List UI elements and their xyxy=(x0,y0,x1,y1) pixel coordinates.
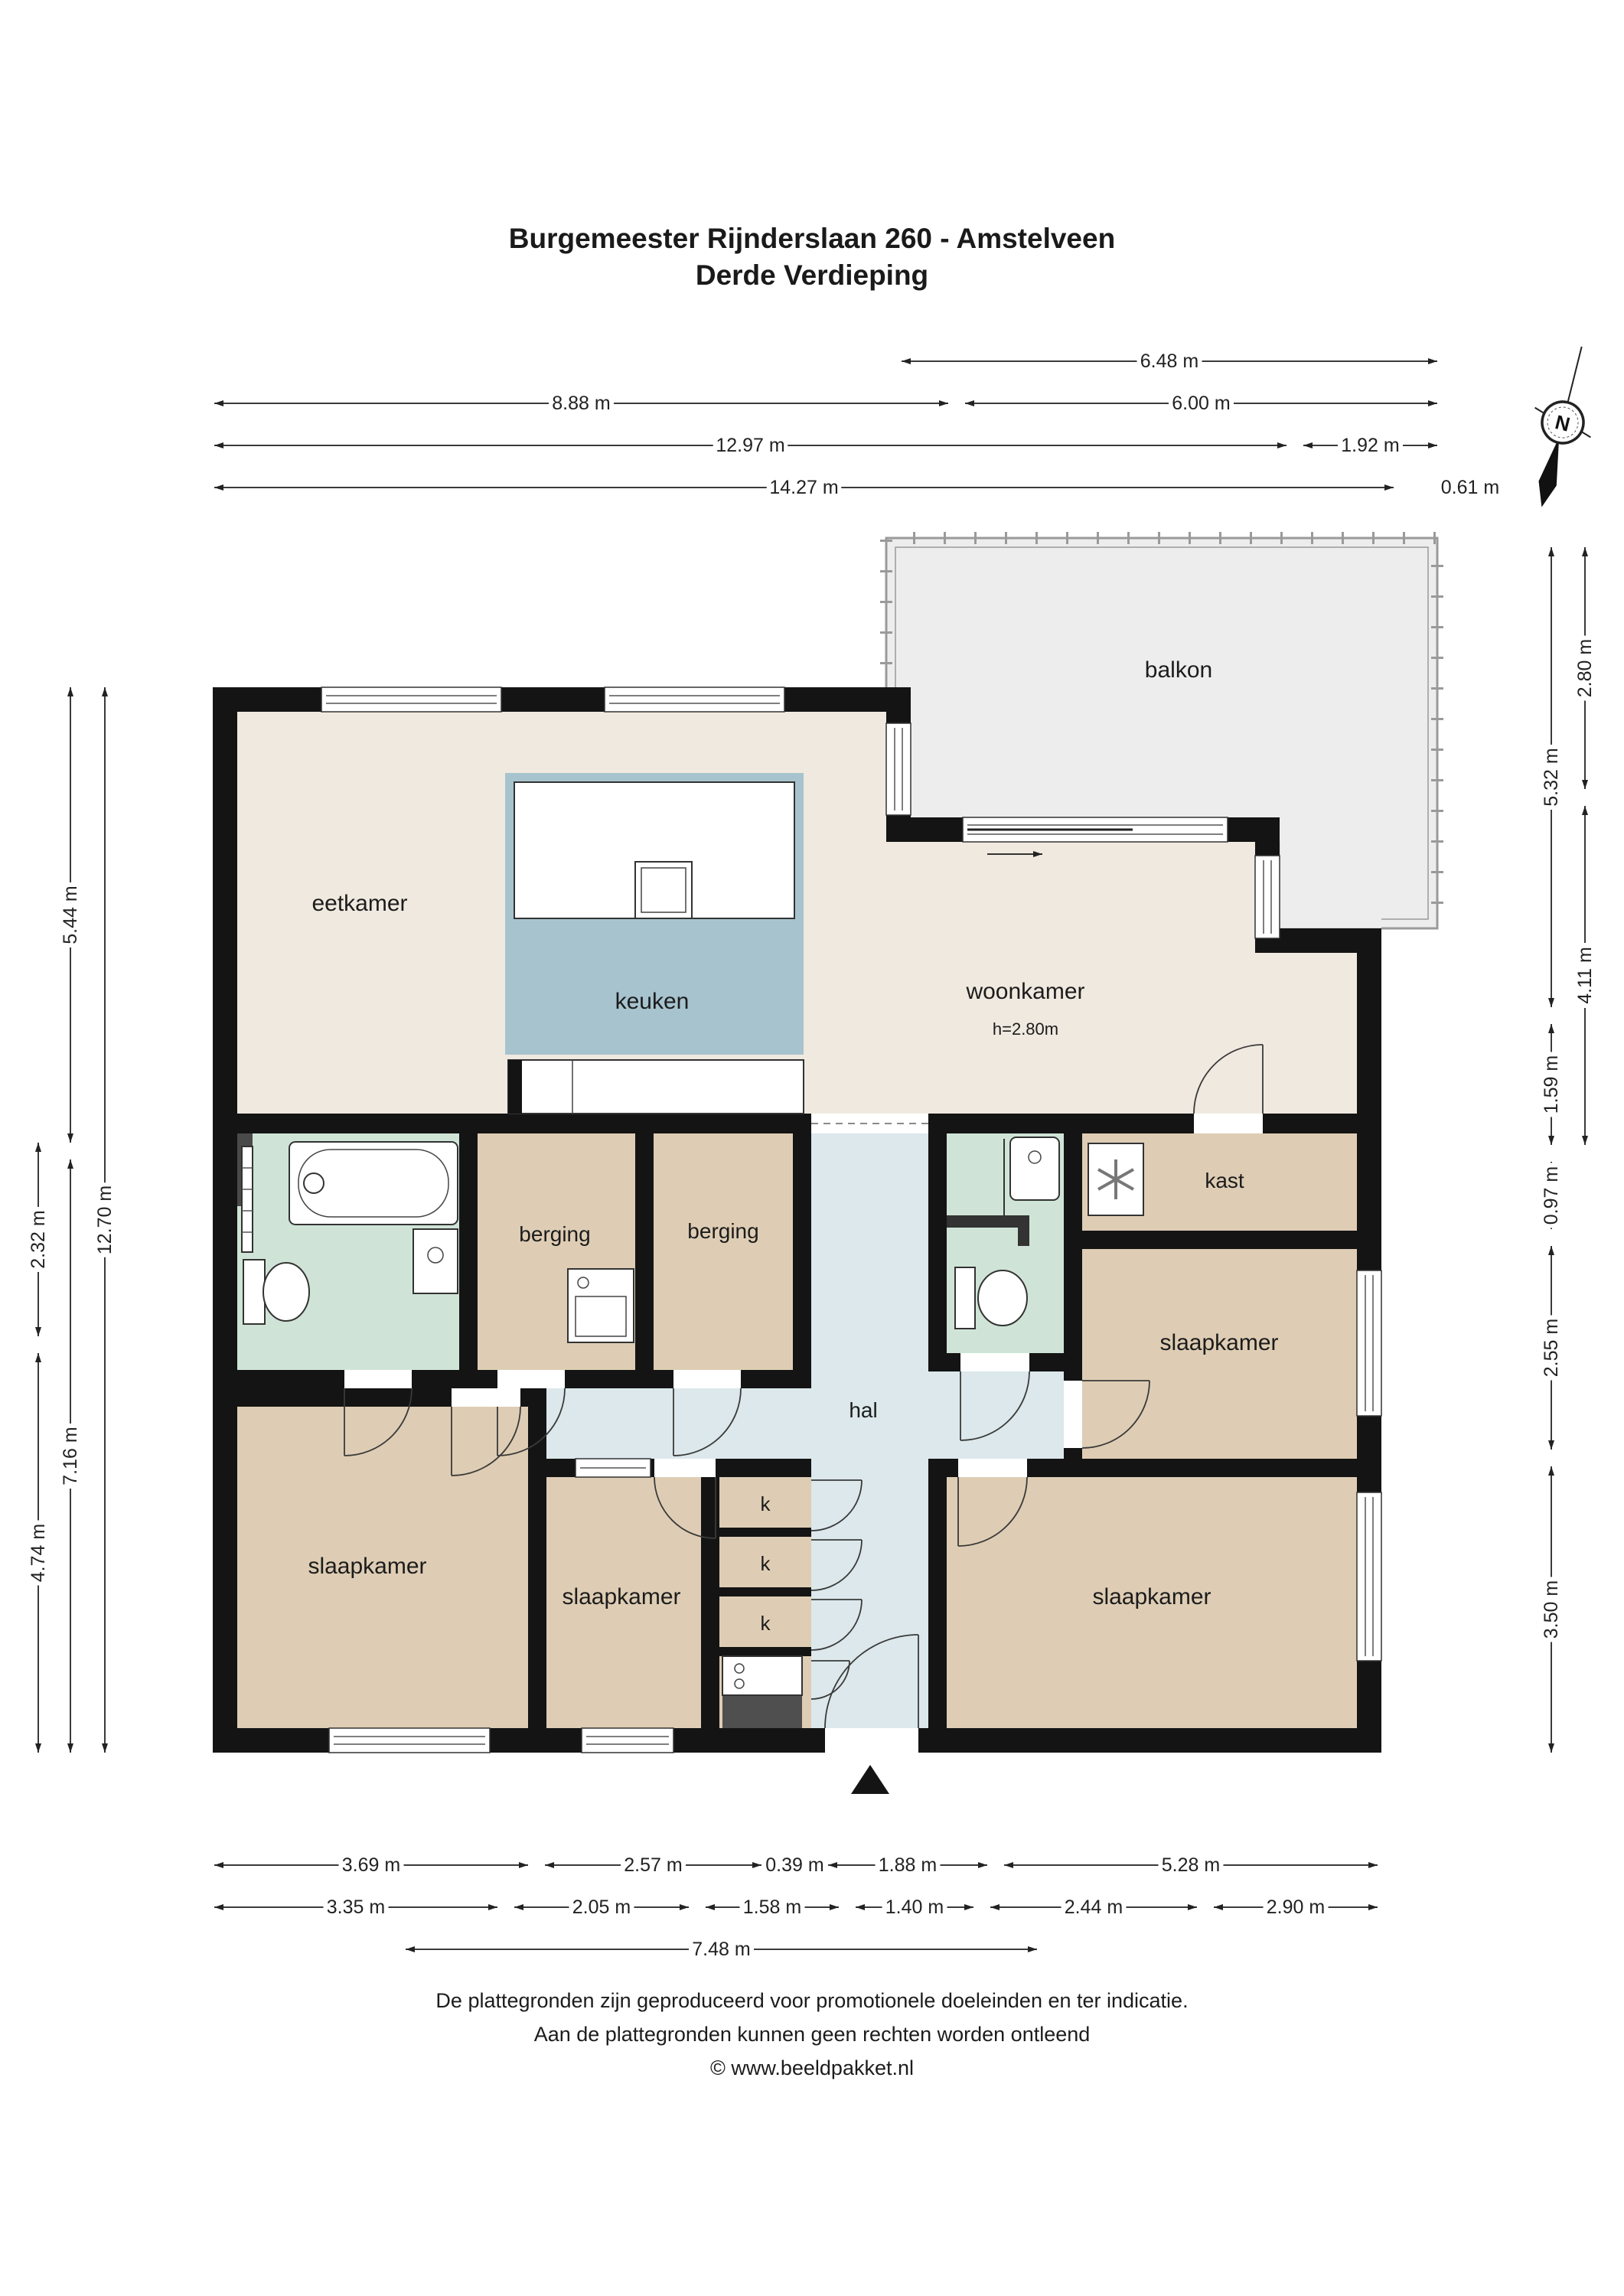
room-label-woonkamer-height: h=2.80m xyxy=(993,1019,1058,1039)
svg-text:12.70 m: 12.70 m xyxy=(94,1186,116,1254)
dimension: 4.11 m xyxy=(1574,806,1596,1145)
svg-text:6.48 m: 6.48 m xyxy=(1140,351,1198,372)
dimension: 1.40 m xyxy=(856,1896,973,1918)
dimension: 12.97 m xyxy=(214,435,1286,456)
dimension: 7.16 m xyxy=(60,1159,81,1753)
svg-text:6.00 m: 6.00 m xyxy=(1172,393,1230,414)
dimension: 3.69 m xyxy=(214,1854,528,1876)
svg-text:5.32 m: 5.32 m xyxy=(1541,748,1562,806)
dimension: 1.92 m xyxy=(1303,435,1437,456)
room-label-slaapkamer-right: slaapkamer xyxy=(1159,1330,1278,1355)
svg-text:7.48 m: 7.48 m xyxy=(692,1939,750,1960)
svg-text:4.74 m: 4.74 m xyxy=(28,1524,49,1582)
room-label-closet-2: k xyxy=(761,1552,771,1575)
hall-trunk-floor xyxy=(811,1133,928,1728)
svg-text:12.97 m: 12.97 m xyxy=(716,435,784,456)
room-label-slaapkamer-middle: slaapkamer xyxy=(562,1584,680,1609)
dimension: 2.57 m xyxy=(545,1854,761,1876)
dimension: 2.55 m xyxy=(1541,1246,1562,1450)
floorplan-page: Burgemeester Rijnderslaan 260 - Amstelve… xyxy=(0,0,1624,2296)
svg-text:2.57 m: 2.57 m xyxy=(624,1854,682,1876)
hall-right-arm-floor xyxy=(928,1371,1082,1459)
dimension: 5.44 m xyxy=(60,687,81,1143)
svg-text:0.97 m: 0.97 m xyxy=(1541,1166,1562,1225)
svg-text:0.39 m: 0.39 m xyxy=(765,1854,823,1876)
room-label-slaapkamer-left: slaapkamer xyxy=(308,1554,426,1579)
svg-text:2.05 m: 2.05 m xyxy=(572,1896,631,1918)
dimension: 2.80 m xyxy=(1574,547,1596,789)
svg-text:2.44 m: 2.44 m xyxy=(1065,1896,1123,1918)
window-icon xyxy=(582,1728,673,1753)
washer-icon xyxy=(568,1269,634,1342)
dimension: 4.74 m xyxy=(28,1353,49,1753)
svg-text:2.55 m: 2.55 m xyxy=(1541,1319,1562,1377)
dimension: 0.39 m xyxy=(762,1854,827,1876)
dimension: 2.90 m xyxy=(1214,1896,1378,1918)
room-label-keuken: keuken xyxy=(615,989,690,1014)
svg-text:3.35 m: 3.35 m xyxy=(327,1896,385,1918)
dimension: 7.48 m xyxy=(406,1939,1037,1960)
room-label-berging-1: berging xyxy=(519,1222,590,1246)
room-label-hal: hal xyxy=(849,1398,877,1422)
window-icon xyxy=(1357,1492,1381,1661)
window-icon xyxy=(886,723,911,815)
room-label-berging-2: berging xyxy=(687,1219,758,1243)
kitchen-cabinets-icon xyxy=(508,1060,804,1114)
room-label-balkon: balkon xyxy=(1145,657,1212,683)
toilet-icon xyxy=(955,1267,1027,1329)
washbasin-icon xyxy=(1010,1137,1059,1200)
svg-text:5.28 m: 5.28 m xyxy=(1162,1854,1220,1876)
svg-text:2.90 m: 2.90 m xyxy=(1267,1896,1325,1918)
svg-text:1.40 m: 1.40 m xyxy=(885,1896,944,1918)
window-icon xyxy=(329,1728,490,1753)
svg-text:0.61 m: 0.61 m xyxy=(1441,477,1499,498)
svg-text:4.11 m: 4.11 m xyxy=(1574,947,1596,1004)
floorplan-drawing: N 6.48 m8.88 m6.00 m12.97 m1.92 m14.27 m… xyxy=(0,0,1624,2296)
bathtub-icon xyxy=(289,1142,458,1225)
room-label-slaapkamer-bottom-right: slaapkamer xyxy=(1092,1584,1211,1609)
room-label-woonkamer: woonkamer xyxy=(965,979,1084,1004)
svg-text:1.88 m: 1.88 m xyxy=(879,1854,937,1876)
technical-closet xyxy=(722,1695,802,1728)
toilet-icon xyxy=(243,1260,309,1324)
dimension: 8.88 m xyxy=(214,393,948,414)
disclaimer-line-1: De plattegronden zijn geproduceerd voor … xyxy=(0,1984,1624,2017)
storage2-floor xyxy=(654,1133,793,1370)
dimension: 2.44 m xyxy=(990,1896,1197,1918)
disclaimer: De plattegronden zijn geproduceerd voor … xyxy=(0,1984,1624,2085)
svg-text:7.16 m: 7.16 m xyxy=(60,1427,81,1485)
window-icon xyxy=(321,687,501,712)
svg-text:2.80 m: 2.80 m xyxy=(1574,639,1596,697)
svg-text:14.27 m: 14.27 m xyxy=(769,477,838,498)
dimension: 1.58 m xyxy=(706,1896,839,1918)
dimension: 3.50 m xyxy=(1541,1466,1562,1753)
svg-text:5.44 m: 5.44 m xyxy=(60,885,81,944)
entrance-arrow xyxy=(851,1765,889,1794)
room-label-kast: kast xyxy=(1205,1169,1244,1192)
window-icon xyxy=(1357,1270,1381,1416)
dimension: 2.05 m xyxy=(514,1896,689,1918)
svg-text:2.32 m: 2.32 m xyxy=(28,1210,49,1268)
kitchen-counter-icon xyxy=(514,782,794,918)
svg-text:1.59 m: 1.59 m xyxy=(1541,1055,1562,1114)
svg-text:8.88 m: 8.88 m xyxy=(552,393,610,414)
svg-text:1.58 m: 1.58 m xyxy=(743,1896,801,1918)
dimension: 6.00 m xyxy=(965,393,1437,414)
radiator-icon xyxy=(242,1146,253,1252)
dimension: 0.97 m xyxy=(1541,1162,1562,1229)
dimension: 12.70 m xyxy=(94,687,116,1753)
washbasin-icon xyxy=(413,1229,458,1293)
dimension: 2.32 m xyxy=(28,1143,49,1336)
ventilation-icon xyxy=(1088,1143,1143,1215)
svg-text:3.50 m: 3.50 m xyxy=(1541,1580,1562,1639)
dimension: 1.88 m xyxy=(828,1854,987,1876)
dimension: 3.35 m xyxy=(214,1896,497,1918)
window-icon xyxy=(576,1459,651,1477)
window-icon xyxy=(605,687,784,712)
dimension: 5.28 m xyxy=(1004,1854,1378,1876)
svg-text:1.92 m: 1.92 m xyxy=(1341,435,1399,456)
dimension: 1.59 m xyxy=(1541,1024,1562,1145)
room-label-eetkamer: eetkamer xyxy=(311,891,407,916)
dimension: 0.61 m xyxy=(1438,477,1503,498)
room-label-closet-3: k xyxy=(761,1612,771,1635)
dimension: 6.48 m xyxy=(902,351,1437,372)
window-icon xyxy=(1255,856,1280,938)
disclaimer-line-2: Aan de plattegronden kunnen geen rechten… xyxy=(0,2017,1624,2051)
cabinet-icon xyxy=(722,1656,802,1695)
dimension: 14.27 m xyxy=(214,477,1394,498)
svg-text:3.69 m: 3.69 m xyxy=(342,1854,400,1876)
copyright: © www.beeldpakket.nl xyxy=(0,2051,1624,2085)
compass-rose: N xyxy=(1512,339,1612,514)
dimension: 5.32 m xyxy=(1541,547,1562,1007)
room-label-closet-1: k xyxy=(761,1492,771,1515)
